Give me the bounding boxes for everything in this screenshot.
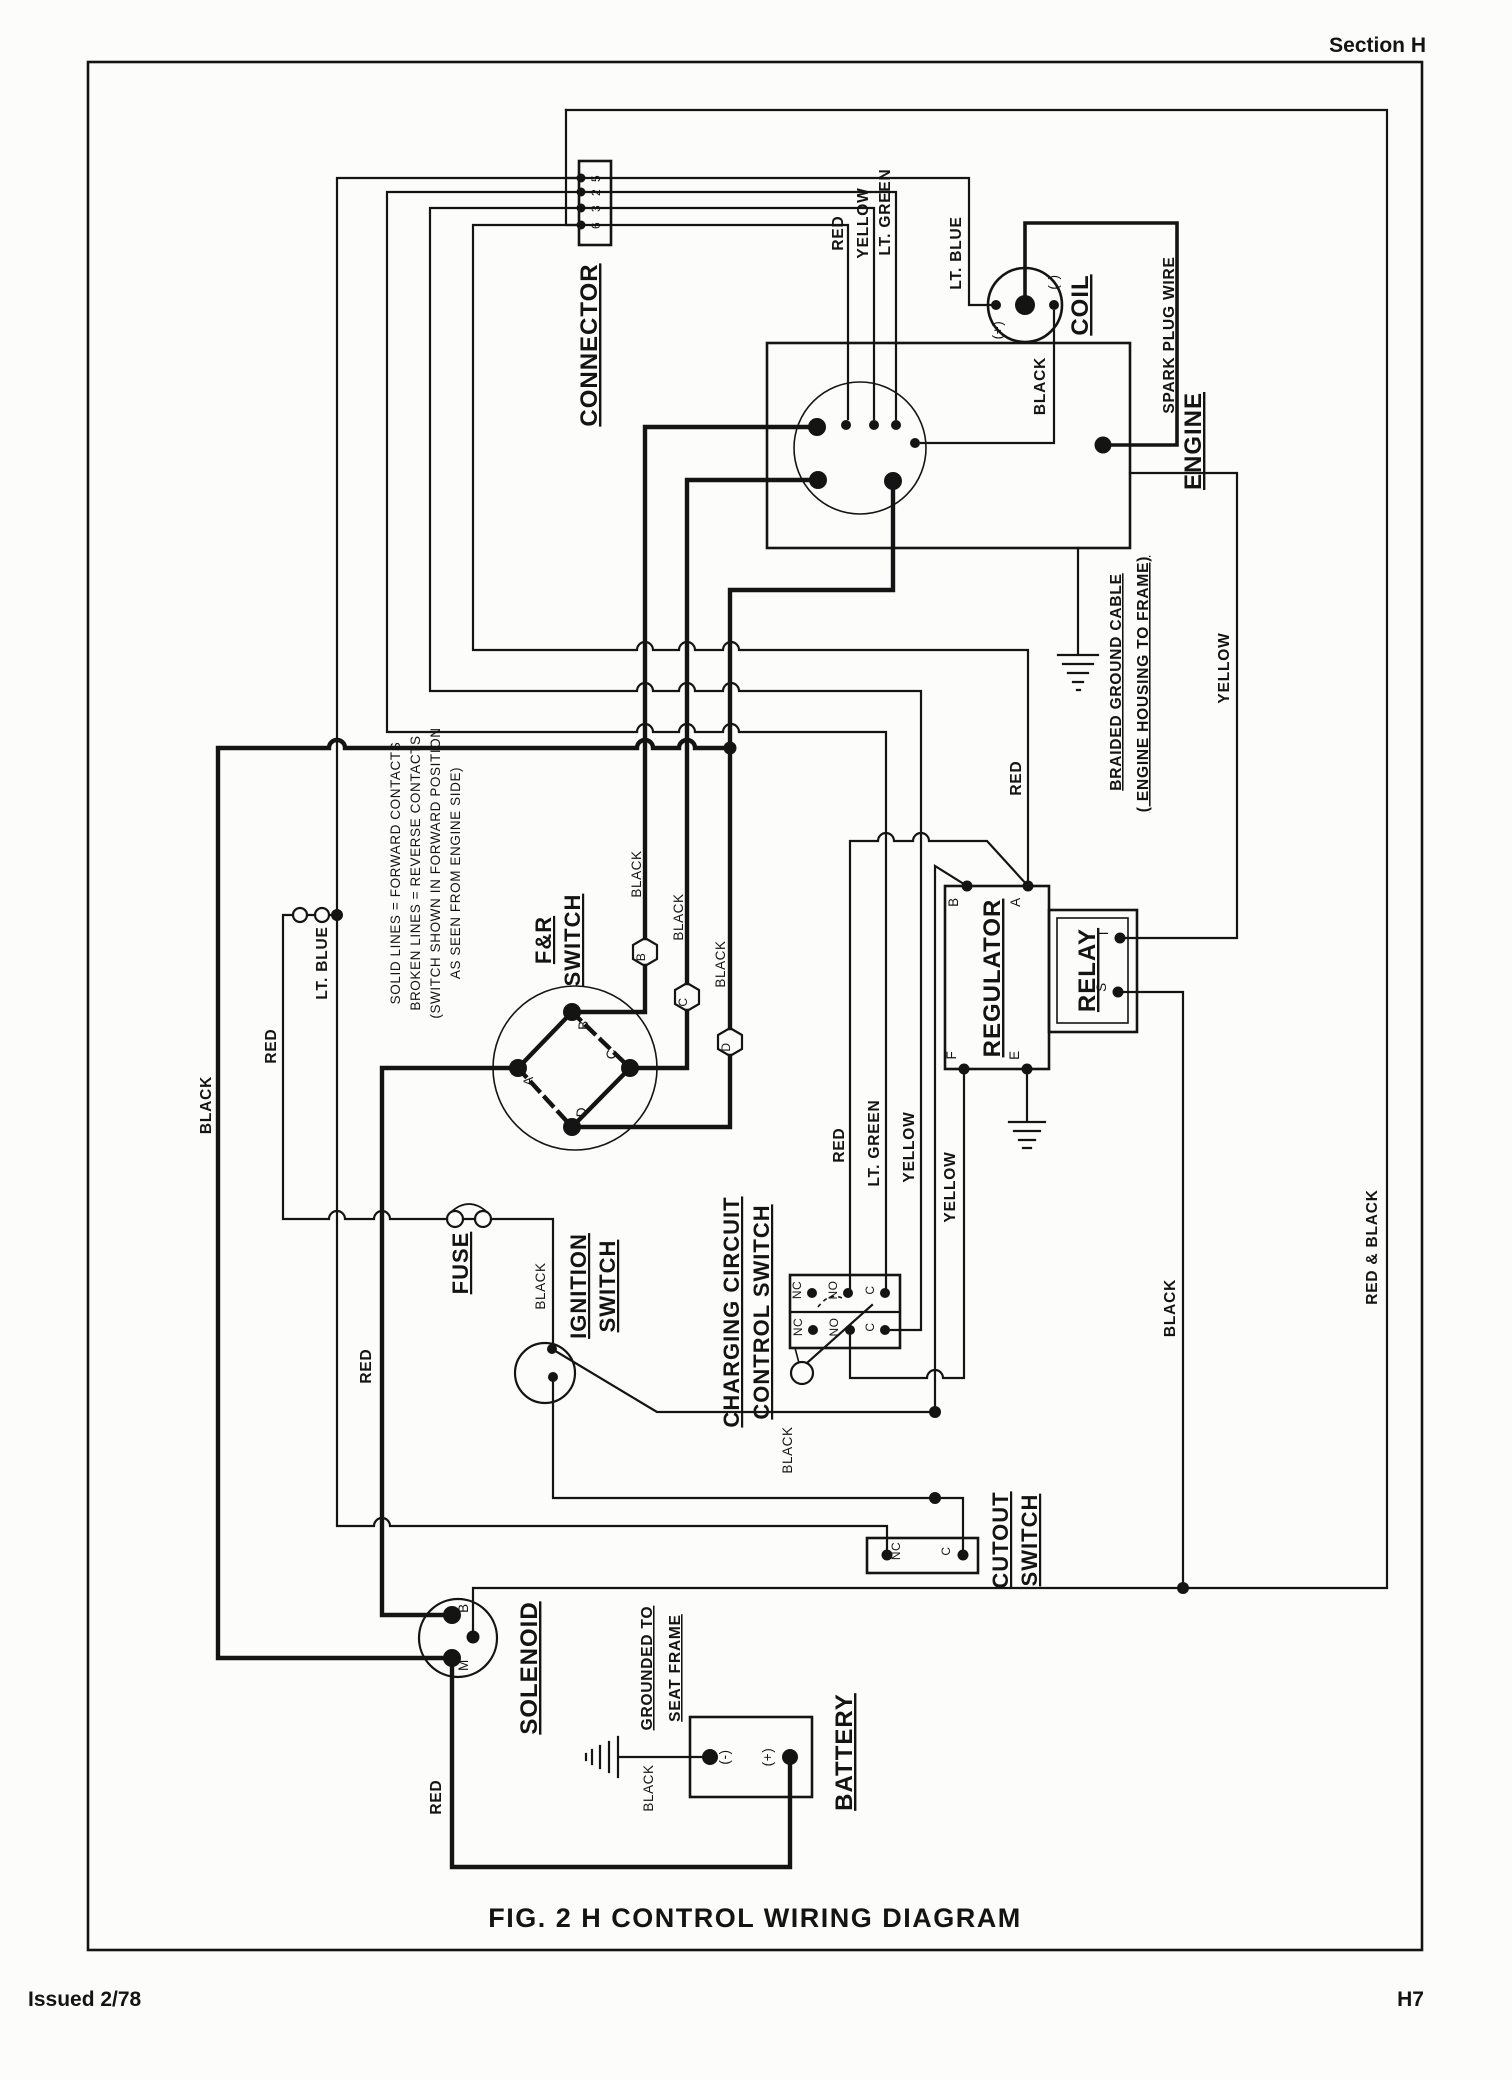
regulator-terminal-e: E <box>1007 1050 1022 1060</box>
battery-ground: BLACK GROUNDED TO SEAT FRAME <box>586 1606 704 1812</box>
figure-title: FIG. 2 H CONTROL WIRING DIAGRAM <box>488 1903 1022 1933</box>
connector-pin-label: 3 <box>589 205 603 212</box>
engine-ground: BRAIDED GROUND CABLE ( ENGINE HOUSING TO… <box>1058 548 1152 812</box>
spark-plug-wire-label: SPARK PLUG WIRE <box>1161 256 1178 413</box>
wire-color-black: BLACK <box>780 1426 795 1473</box>
hex-connector-b: B <box>634 953 648 962</box>
wire-color-lt-green: LT. GREEN <box>866 1099 883 1186</box>
engine-label: ENGINE <box>1180 392 1207 490</box>
coil-negative-label: (-) <box>1046 274 1061 289</box>
wire-color-red: RED <box>358 1348 375 1383</box>
wire-color-red: RED <box>1008 760 1025 795</box>
cutout-switch-component: NC C CUTOUT SWITCH <box>867 1491 1042 1588</box>
wire-color-black: BLACK <box>641 1764 656 1811</box>
note-switch-shown: (SWITCH SHOWN IN FORWARD POSITION <box>428 727 443 1018</box>
hex-connector-c: C <box>676 997 690 1006</box>
charging-switch-label2: CONTROL SWITCH <box>749 1204 774 1419</box>
grounded-to-label: GROUNDED TO <box>639 1606 656 1731</box>
braided-ground-cable-label2: ( ENGINE HOUSING TO FRAME) <box>1135 556 1152 812</box>
connector-right-wires: RED YELLOW LT. GREEN LT. BLUE <box>611 168 991 419</box>
solenoid-terminal-b: B <box>456 1603 471 1613</box>
connector-component: 5 2 3 6 CONNECTOR <box>566 110 611 427</box>
wire-color-yellow: YELLOW <box>855 187 872 258</box>
seat-frame-label: SEAT FRAME <box>667 1614 684 1722</box>
battery-negative-label: (-) <box>717 1749 732 1764</box>
regulator-terminal-b: B <box>946 897 961 907</box>
fr-switch-label2: SWITCH <box>560 894 585 987</box>
red-heavy-wire: RED <box>358 1068 518 1615</box>
connector-label: CONNECTOR <box>576 263 603 426</box>
coil-label: COIL <box>1067 274 1094 335</box>
ignition-switch-label2: SWITCH <box>595 1240 620 1333</box>
issued-date: Issued 2/78 <box>28 1988 142 2011</box>
wire-color-red: RED <box>830 215 847 250</box>
connector-pin-label: 2 <box>589 189 603 196</box>
wire-color-yellow: YELLOW <box>1216 632 1233 703</box>
wire-color-black: BLACK <box>1162 1279 1179 1337</box>
connector-pin-label: 5 <box>589 175 603 182</box>
page-number: H7 <box>1397 1988 1424 2011</box>
fr-terminal-d: D <box>574 1107 589 1117</box>
wire-color-black: BLACK <box>533 1262 548 1309</box>
wire-color-yellow: YELLOW <box>901 1111 918 1182</box>
fr-switch-label: F&R <box>531 916 556 964</box>
relay-label: RELAY <box>1074 928 1101 1012</box>
cutout-switch-label: CUTOUT <box>988 1491 1013 1588</box>
cutout-switch-label2: SWITCH <box>1017 1494 1042 1587</box>
wire-color-black: BLACK <box>198 1076 215 1134</box>
regulator-b-wire <box>935 866 967 1412</box>
solenoid-label: SOLENOID <box>516 1601 543 1734</box>
note-broken-lines: BROKEN LINES = REVERSE CONTACTS <box>408 735 423 1010</box>
harness-loop-wire: RED & BLACK <box>467 110 1388 1644</box>
cutout-terminal-nc: NC <box>889 1542 903 1560</box>
ignition-switch-label: IGNITION <box>566 1233 591 1339</box>
wire-color-red: RED <box>428 1779 445 1814</box>
fuse-label: FUSE <box>448 1232 473 1295</box>
wire-color-black: BLACK <box>1032 357 1049 415</box>
wire-color-black: BLACK <box>713 940 728 987</box>
fr-terminal-a: A <box>521 1076 536 1086</box>
wire-color-lt-blue: LT. BLUE <box>314 926 331 999</box>
regulator-label: REGULATOR <box>979 899 1006 1058</box>
wire-color-lt-green: LT. GREEN <box>877 168 894 255</box>
contact-nc: NC <box>791 1318 805 1336</box>
control-wiring-diagram: Section H FIG. 2 H CONTROL WIRING DIAGRA… <box>0 0 1512 2080</box>
connector-pin-label: 6 <box>589 222 603 229</box>
regulator-terminal-f: F <box>944 1051 959 1060</box>
diagram-border <box>88 62 1422 1950</box>
battery-label: BATTERY <box>831 1693 858 1811</box>
solenoid-terminal-m: M <box>456 1659 471 1671</box>
contact-nc: NC <box>790 1281 804 1299</box>
regulator-component: B A F E REGULATOR <box>944 881 1049 1075</box>
regulator-terminal-a: A <box>1008 897 1023 907</box>
contact-c: C <box>863 1285 877 1294</box>
scanned-wiring-diagram-page: Section H FIG. 2 H CONTROL WIRING DIAGRA… <box>0 0 1512 2080</box>
coil-component: (+) (-) COIL <box>988 268 1094 342</box>
charging-switch-label: CHARGING CIRCUIT <box>719 1196 744 1427</box>
wire-color-yellow: YELLOW <box>942 1151 959 1222</box>
fr-terminal-c: C <box>604 1049 619 1059</box>
motor-heavy-wire: BLACK <box>198 740 730 1658</box>
fr-switch-component: B A C D F&R SWITCH <box>493 894 657 1150</box>
regulator-ground <box>1009 1074 1045 1148</box>
hex-connector-d: D <box>719 1042 733 1051</box>
wire-color-black: BLACK <box>671 893 686 940</box>
note-engine-side: AS SEEN FROM ENGINE SIDE) <box>448 767 463 979</box>
contact-c: C <box>863 1322 877 1331</box>
wire-color-black: BLACK <box>629 850 644 897</box>
note-solid-lines: SOLID LINES = FORWARD CONTACTS <box>388 742 403 1005</box>
coil-positive-label: (+) <box>990 321 1005 340</box>
relay-component: I S RELAY <box>1049 910 1137 1032</box>
fr-engine-heavy-wires: B C D BLACK BLACK BLACK <box>572 427 893 1127</box>
cutout-terminal-c: C <box>939 1546 953 1555</box>
wire-color-red: RED <box>831 1127 848 1162</box>
wire-color-red-black: RED & BLACK <box>1364 1189 1381 1305</box>
battery-component: (-) (+) BATTERY <box>690 1693 858 1811</box>
braided-ground-cable-label: BRAIDED GROUND CABLE <box>1108 573 1125 791</box>
fr-switch-notes: SOLID LINES = FORWARD CONTACTS BROKEN LI… <box>388 727 463 1018</box>
battery-positive-label: (+) <box>760 1748 775 1767</box>
wire-color-lt-blue: LT. BLUE <box>948 216 965 289</box>
fr-terminal-b: B <box>576 1020 591 1030</box>
charging-control-switch-component: NC NO C NC NO C CHARGING CIRCUIT CONTROL… <box>719 1196 900 1427</box>
solenoid-component: B M SOLENOID <box>419 1599 543 1735</box>
wire-color-red: RED <box>263 1028 280 1063</box>
section-header: Section H <box>1329 34 1426 57</box>
